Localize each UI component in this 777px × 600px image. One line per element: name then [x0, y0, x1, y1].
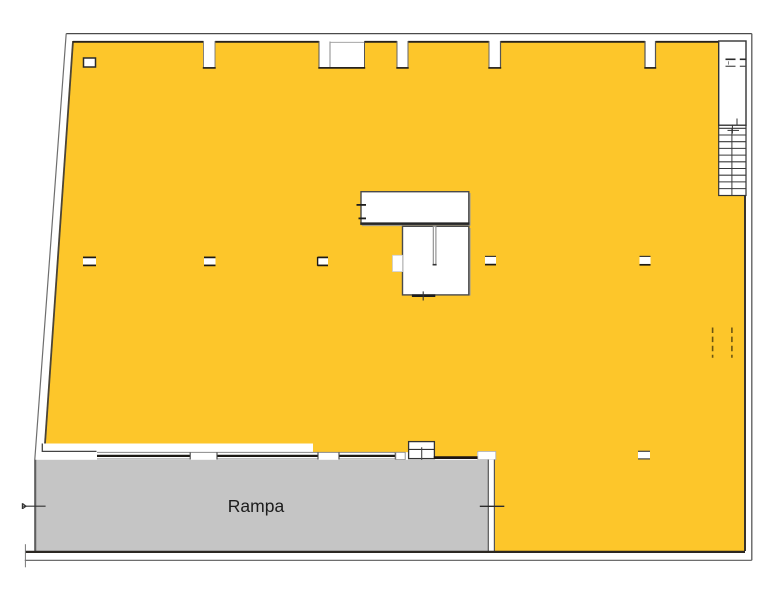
svg-text:Rampa: Rampa: [228, 496, 285, 516]
